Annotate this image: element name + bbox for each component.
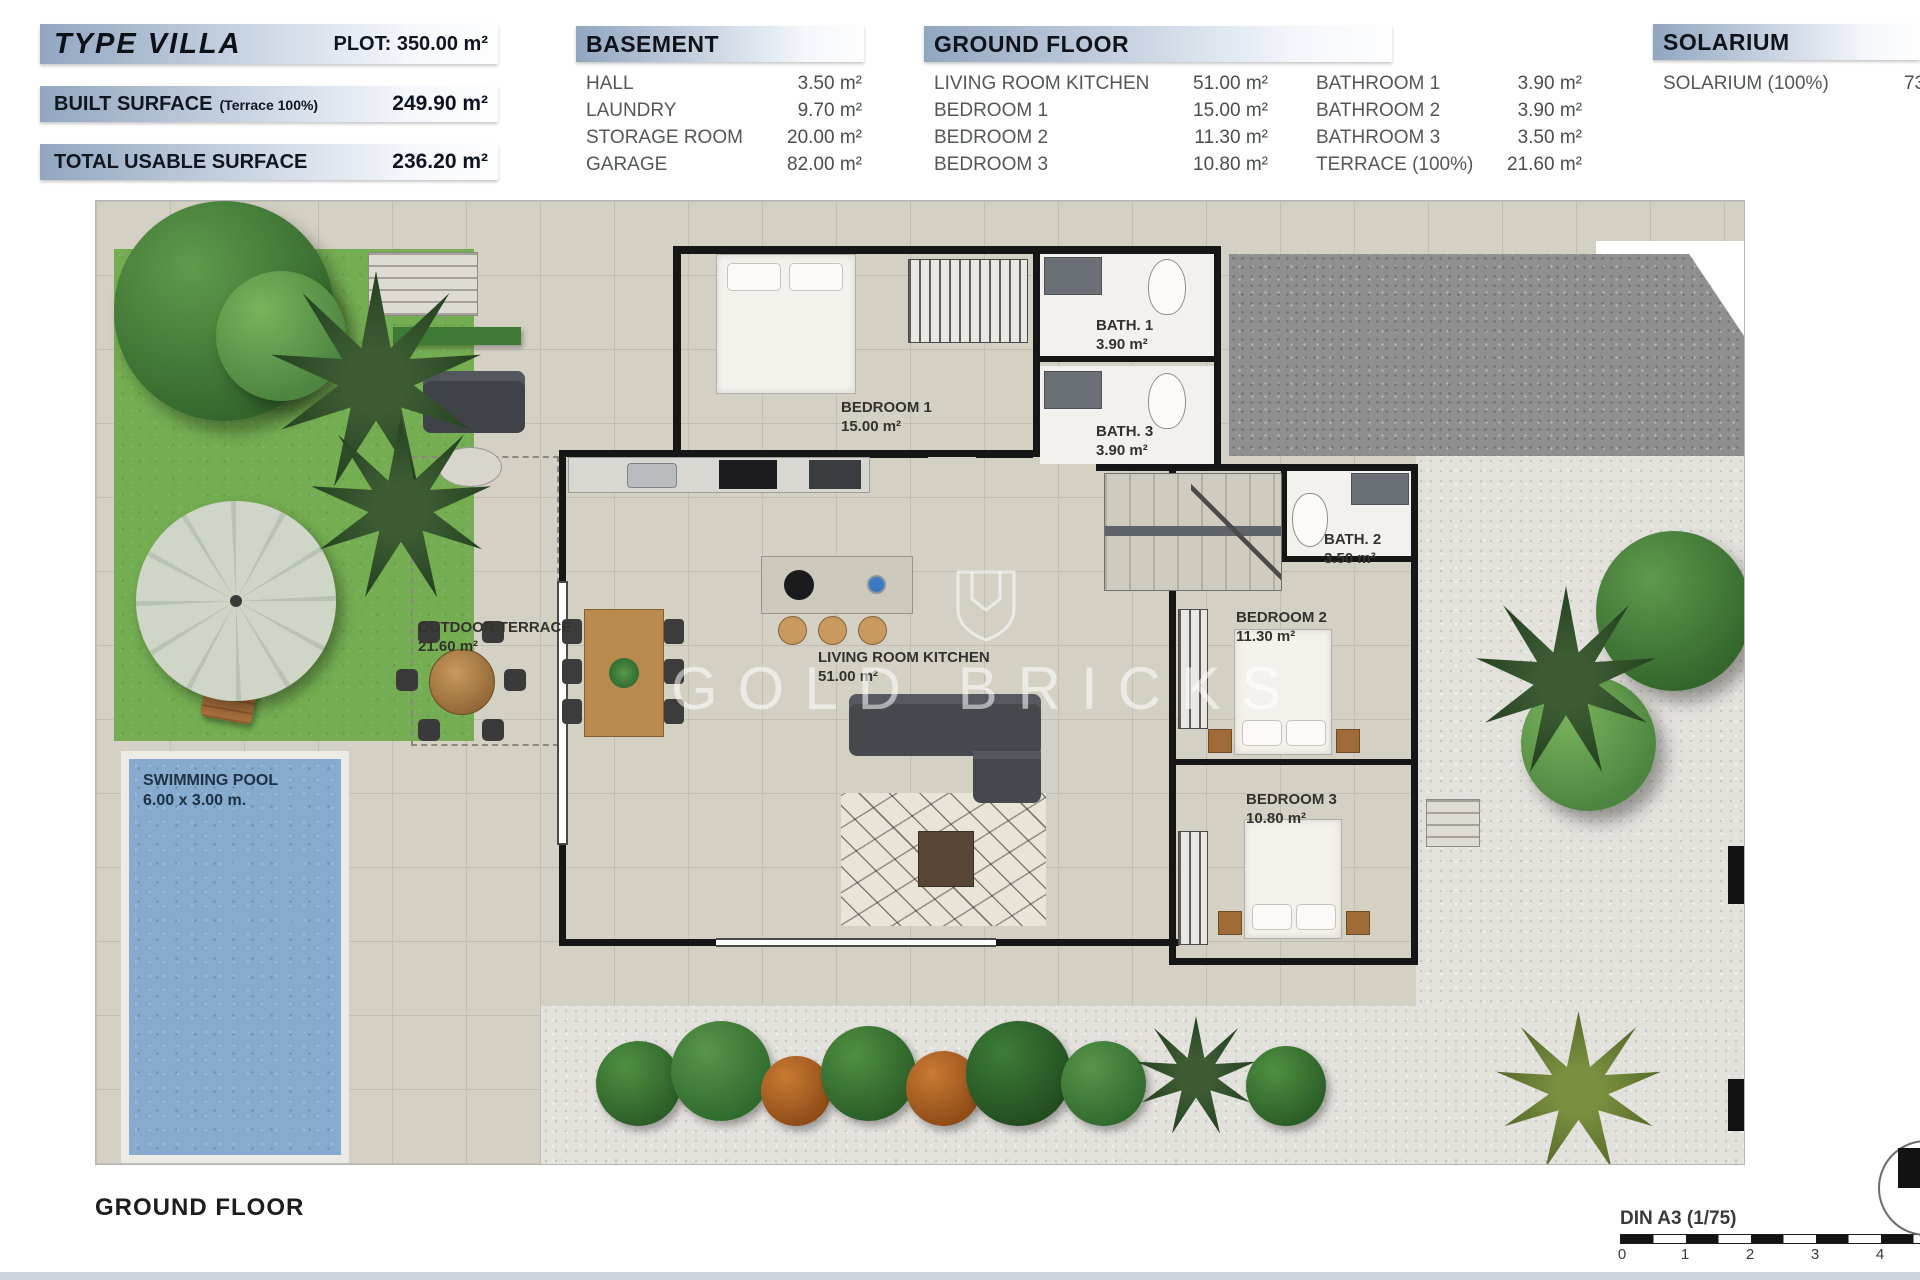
plot-value: PLOT: 350.00 m² bbox=[333, 33, 488, 56]
gravel-area-dark bbox=[1229, 254, 1745, 456]
total-usable-bar: TOTAL USABLE SURFACE 236.20 m² bbox=[40, 144, 498, 180]
sofa-chaise bbox=[973, 751, 1041, 803]
pillow bbox=[727, 263, 781, 291]
wall bbox=[1411, 464, 1418, 965]
utility-unit bbox=[1728, 846, 1745, 904]
sofa bbox=[849, 694, 1041, 756]
basement-title: BASEMENT bbox=[576, 31, 719, 58]
built-surface-value: 249.90 m² bbox=[392, 92, 488, 116]
pillow bbox=[1242, 720, 1282, 746]
ground-floor-col2: BATHROOM 13.90 m² BATHROOM 23.90 m² BATH… bbox=[1306, 70, 1584, 178]
scale-bar bbox=[1620, 1234, 1920, 1244]
bush bbox=[1061, 1041, 1146, 1126]
kitchen-island bbox=[761, 556, 913, 614]
built-surface-label: BUILT SURFACE bbox=[54, 93, 213, 116]
basement-row: HALL3.50 m² bbox=[576, 70, 864, 97]
bar-stool bbox=[858, 616, 887, 645]
room-label-bedroom3: BEDROOM 310.80 m² bbox=[1246, 791, 1337, 829]
wall bbox=[1033, 246, 1040, 457]
dining-chair bbox=[664, 699, 684, 724]
solarium-table: SOLARIUM SOLARIUM (100%) 73.30 m² bbox=[1653, 24, 1920, 97]
parasol-pole bbox=[230, 595, 242, 607]
bath2-vanity bbox=[1351, 473, 1409, 505]
round-table bbox=[429, 649, 495, 715]
kitchen-sink bbox=[627, 463, 677, 488]
total-usable-value: 236.20 m² bbox=[392, 150, 488, 174]
dining-chair bbox=[562, 699, 582, 724]
interior-staircase bbox=[1104, 473, 1282, 591]
sheet-badge-mark bbox=[1898, 1148, 1920, 1188]
nightstand bbox=[1336, 729, 1360, 753]
solarium-title: SOLARIUM bbox=[1653, 29, 1790, 56]
island-cooktop bbox=[784, 570, 814, 600]
ground-floor-row: BEDROOM 310.80 m² bbox=[924, 151, 1270, 178]
wall bbox=[1033, 356, 1218, 362]
dining-chair bbox=[664, 659, 684, 684]
ground-floor-table: GROUND FLOOR LIVING ROOM KITCHEN51.00 m²… bbox=[924, 26, 1588, 178]
bath3-toilet bbox=[1148, 373, 1186, 429]
bar-stool bbox=[818, 616, 847, 645]
bush bbox=[821, 1026, 916, 1121]
pillow bbox=[1252, 904, 1292, 930]
room-label-bath2: BATH. 23.50 m² bbox=[1324, 531, 1381, 569]
sheet-title: GROUND FLOOR bbox=[95, 1194, 304, 1222]
ground-floor-title: GROUND FLOOR bbox=[924, 31, 1129, 58]
wall bbox=[976, 451, 1033, 458]
solarium-row: SOLARIUM (100%) 73.30 m² bbox=[1653, 70, 1920, 97]
bath3-vanity bbox=[1044, 371, 1102, 409]
bush bbox=[596, 1041, 681, 1126]
basement-table: BASEMENT HALL3.50 m² LAUNDRY9.70 m² STOR… bbox=[576, 26, 864, 178]
pillow bbox=[789, 263, 843, 291]
wardrobe bbox=[908, 259, 1028, 343]
room-label-outdoor-terrace: OUTDOOR TERRACE21.60 m² bbox=[418, 619, 571, 657]
dining-chair bbox=[664, 619, 684, 644]
bar-stool bbox=[778, 616, 807, 645]
wardrobe bbox=[1178, 831, 1208, 945]
basement-row: LAUNDRY9.70 m² bbox=[576, 97, 864, 124]
built-surface-note: (Terrace 100%) bbox=[220, 97, 319, 113]
cooktop bbox=[719, 460, 777, 489]
wall bbox=[1096, 464, 1418, 471]
kitchen-counter bbox=[568, 457, 870, 493]
bush bbox=[671, 1021, 771, 1121]
oven bbox=[809, 460, 861, 489]
ground-floor-row: BATHROOM 23.90 m² bbox=[1306, 97, 1584, 124]
scale-ticks: 0 1 2 3 4 bbox=[1620, 1244, 1920, 1264]
page-bottom-rule bbox=[0, 1272, 1920, 1280]
table-plant bbox=[609, 658, 639, 688]
swimming-pool: SWIMMING POOL 6.00 x 3.00 m. bbox=[121, 751, 349, 1163]
island-sink bbox=[867, 575, 886, 594]
ground-floor-row: BATHROOM 33.50 m² bbox=[1306, 124, 1584, 151]
nightstand bbox=[1346, 911, 1370, 935]
tree bbox=[216, 271, 346, 401]
sliding-glass-door bbox=[716, 938, 996, 947]
terrace-chair bbox=[396, 669, 418, 691]
exterior-stairs bbox=[368, 252, 478, 316]
type-villa-bar: TYPE VILLA PLOT: 350.00 m² bbox=[40, 24, 498, 64]
basement-header: BASEMENT bbox=[576, 26, 864, 62]
wall bbox=[1169, 759, 1418, 765]
room-label-bath1: BATH. 13.90 m² bbox=[1096, 317, 1153, 355]
bed bbox=[1244, 819, 1342, 939]
outdoor-sofa bbox=[423, 371, 525, 433]
total-usable-label: TOTAL USABLE SURFACE bbox=[54, 151, 307, 174]
ground-floor-row: LIVING ROOM KITCHEN51.00 m² bbox=[924, 70, 1270, 97]
coffee-table bbox=[918, 831, 974, 887]
solarium-header: SOLARIUM bbox=[1653, 24, 1920, 60]
pillow bbox=[1286, 720, 1326, 746]
bed bbox=[716, 254, 856, 394]
dining-chair bbox=[562, 659, 582, 684]
room-label-living-room: LIVING ROOM KITCHEN51.00 m² bbox=[818, 649, 990, 687]
bath2-toilet bbox=[1292, 493, 1328, 547]
scale-indicator: DIN A3 (1/75) 0 1 2 3 4 bbox=[1620, 1208, 1920, 1264]
terrace-chair bbox=[418, 719, 440, 741]
swimming-pool-label: SWIMMING POOL 6.00 x 3.00 m. bbox=[143, 771, 278, 811]
wall bbox=[673, 246, 681, 451]
bath1-vanity bbox=[1044, 257, 1102, 295]
room-label-bedroom1: BEDROOM 115.00 m² bbox=[841, 399, 932, 437]
wall bbox=[1169, 958, 1418, 965]
basement-row: GARAGE82.00 m² bbox=[576, 151, 864, 178]
utility-unit bbox=[1728, 1079, 1745, 1131]
wall bbox=[673, 246, 1221, 254]
bush bbox=[1246, 1046, 1326, 1126]
ground-floor-col1: LIVING ROOM KITCHEN51.00 m² BEDROOM 115.… bbox=[924, 70, 1270, 178]
ground-floor-header: GROUND FLOOR bbox=[924, 26, 1392, 62]
nightstand bbox=[1218, 911, 1242, 935]
bush bbox=[966, 1021, 1071, 1126]
basement-row: STORAGE ROOM20.00 m² bbox=[576, 124, 864, 151]
terrace-chair bbox=[482, 719, 504, 741]
type-label: TYPE VILLA bbox=[54, 28, 242, 61]
ground-floor-row: BEDROOM 115.00 m² bbox=[924, 97, 1270, 124]
scale-label: DIN A3 (1/75) bbox=[1620, 1208, 1920, 1230]
built-surface-bar: BUILT SURFACE (Terrace 100%) 249.90 m² bbox=[40, 86, 498, 122]
wardrobe bbox=[1178, 609, 1208, 729]
terrace-chair bbox=[504, 669, 526, 691]
floor-plan: SWIMMING POOL 6.00 x 3.00 m. bbox=[95, 200, 1745, 1165]
nightstand bbox=[1208, 729, 1232, 753]
floorplan-sheet: TYPE VILLA PLOT: 350.00 m² BUILT SURFACE… bbox=[0, 0, 1920, 1280]
ground-floor-row: BEDROOM 211.30 m² bbox=[924, 124, 1270, 151]
room-label-bedroom2: BEDROOM 211.30 m² bbox=[1236, 609, 1327, 647]
ground-floor-row: TERRACE (100%)21.60 m² bbox=[1306, 151, 1584, 178]
bed bbox=[1234, 629, 1332, 755]
shield-logo-icon bbox=[954, 569, 1018, 643]
pillow bbox=[1296, 904, 1336, 930]
ground-floor-row: BATHROOM 13.90 m² bbox=[1306, 70, 1584, 97]
dining-table bbox=[584, 609, 664, 737]
room-label-bath3: BATH. 33.90 m² bbox=[1096, 423, 1153, 461]
bath1-toilet bbox=[1148, 259, 1186, 315]
stair-diagonal bbox=[1191, 474, 1281, 590]
garden-steps bbox=[1426, 799, 1480, 847]
